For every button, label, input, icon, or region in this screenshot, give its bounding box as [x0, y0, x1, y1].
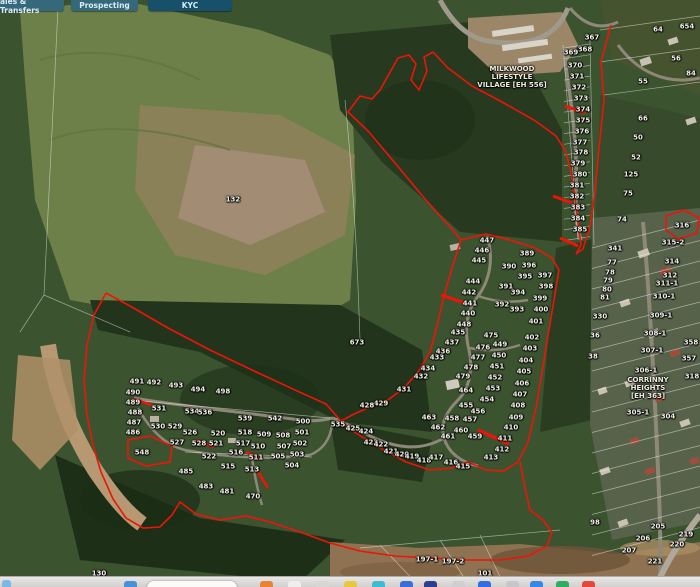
dock-search-pill[interactable] [147, 581, 237, 587]
dock-app-icon[interactable] [372, 581, 385, 587]
township-label: CORRINNYHEIGHTS[EH 363] [627, 376, 668, 400]
dock-app-icon[interactable] [452, 581, 465, 587]
dock-corner-icon[interactable] [2, 580, 11, 587]
dock-app-icon[interactable] [582, 581, 595, 587]
dock-app-icon[interactable] [260, 581, 273, 587]
tab-prospecting[interactable]: Prospecting [71, 0, 138, 11]
tab-bar: ales & Transfers Prospecting KYC [0, 0, 700, 12]
tab-prospecting-label: Prospecting [79, 1, 130, 10]
tab-sales-and-transfers[interactable]: ales & Transfers [0, 0, 64, 11]
dock-app-icon[interactable] [556, 581, 569, 587]
terrain-layer [0, 0, 700, 587]
dock[interactable] [0, 576, 700, 587]
tab-kyc[interactable]: KYC [148, 0, 232, 11]
satellite-map[interactable]: 3673683693703713723733743753763773783793… [0, 0, 700, 587]
tab-sales-and-transfers-label: ales & Transfers [0, 0, 64, 15]
dock-app-icon[interactable] [288, 581, 301, 587]
app-window: 3673683693703713723733743753763773783793… [0, 0, 700, 587]
dock-app-icon[interactable] [124, 581, 137, 587]
dock-app-icon[interactable] [530, 581, 543, 587]
dock-app-icon[interactable] [316, 581, 329, 587]
tab-kyc-label: KYC [182, 1, 198, 10]
dock-app-icon[interactable] [506, 581, 519, 587]
dock-app-icon[interactable] [344, 581, 357, 587]
dock-app-icon[interactable] [400, 581, 413, 587]
dock-app-icon[interactable] [424, 581, 437, 587]
dock-app-icon[interactable] [478, 581, 491, 587]
township-label: MILKWOODLIFESTYLEVILLAGE [EH 556] [477, 65, 546, 89]
